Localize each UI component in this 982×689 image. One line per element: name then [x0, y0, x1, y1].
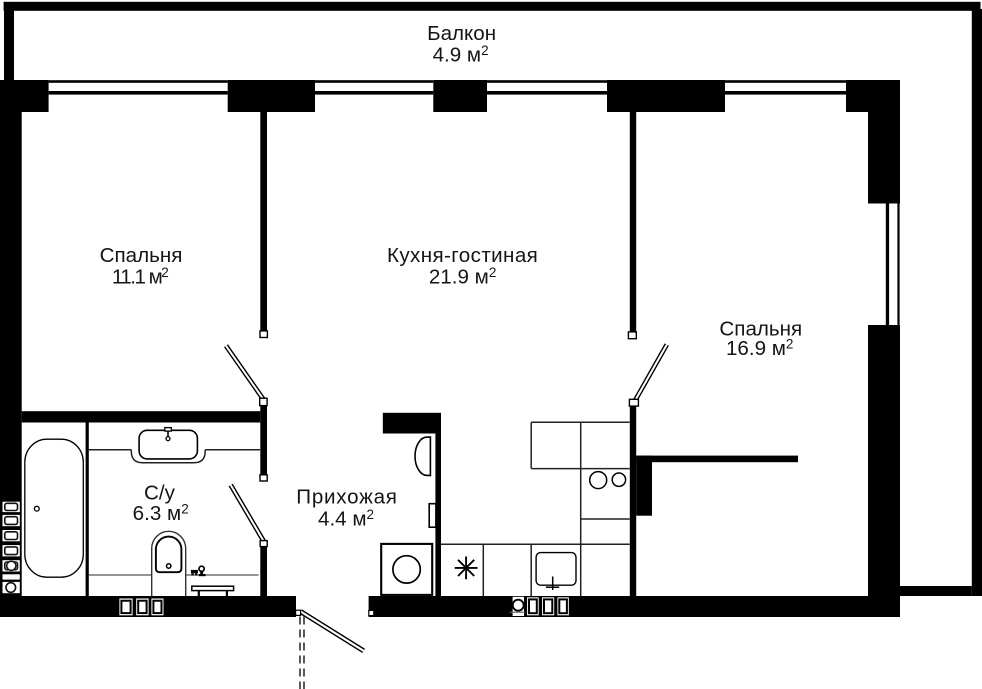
svg-text:Кухня-гостиная: Кухня-гостиная [387, 244, 538, 267]
svg-text:Спальня: Спальня [100, 244, 183, 267]
svg-text:4.9 м2: 4.9 м2 [433, 43, 489, 67]
svg-text:4.4 м2: 4.4 м2 [318, 507, 374, 531]
svg-text:16.9 м2: 16.9 м2 [726, 337, 793, 361]
svg-text:11.1 м2: 11.1 м2 [112, 265, 168, 289]
svg-text:21.9 м2: 21.9 м2 [429, 265, 496, 289]
svg-text:6.3 м2: 6.3 м2 [133, 502, 189, 526]
svg-text:Балкон: Балкон [427, 22, 496, 45]
svg-text:Прихожая: Прихожая [296, 486, 397, 509]
